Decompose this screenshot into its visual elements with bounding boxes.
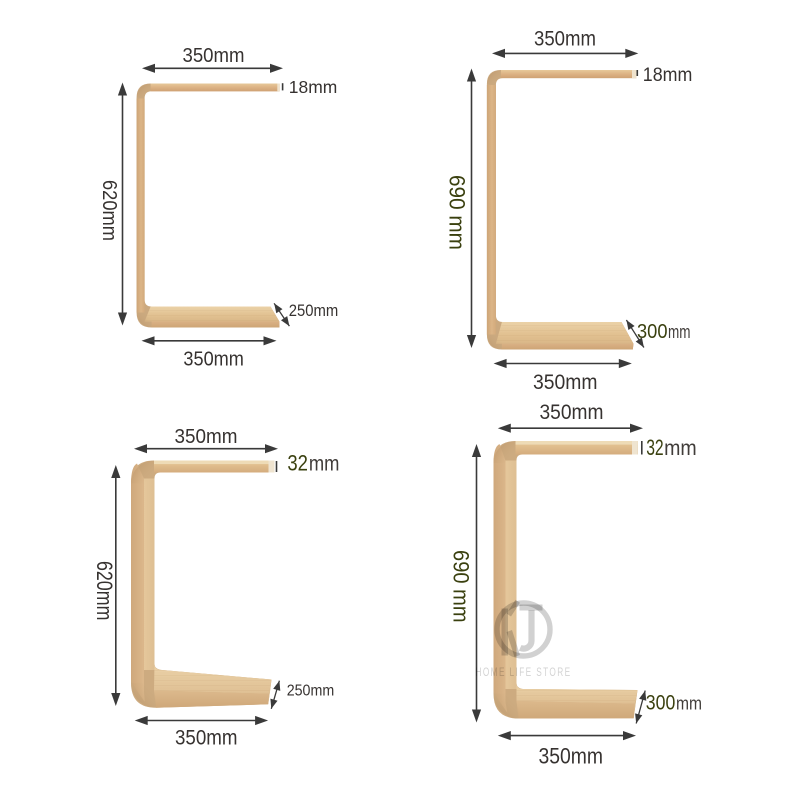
svg-text:350mm: 350mm	[533, 370, 598, 394]
svg-text:620mm: 620mm	[92, 561, 117, 621]
svg-text:350mm: 350mm	[183, 348, 244, 370]
svg-text:350mm: 350mm	[539, 744, 604, 769]
svg-text:350mm: 350mm	[540, 400, 604, 424]
svg-text:mm: mm	[668, 322, 691, 342]
svg-text:18mm: 18mm	[643, 64, 693, 86]
svg-text:HOME LIFE STORE: HOME LIFE STORE	[476, 665, 572, 679]
svg-text:18mm: 18mm	[289, 77, 338, 97]
svg-text:300: 300	[646, 691, 676, 714]
svg-text:mm: mm	[676, 693, 702, 713]
svg-text:350mm: 350mm	[175, 727, 238, 750]
svg-text:250mm: 250mm	[287, 683, 335, 700]
svg-text:mm: mm	[664, 437, 697, 460]
svg-text:690 mm: 690 mm	[449, 550, 474, 623]
svg-text:350mm: 350mm	[534, 26, 596, 50]
svg-text:300: 300	[637, 320, 668, 343]
svg-text:350mm: 350mm	[175, 426, 238, 448]
svg-text:32: 32	[646, 435, 664, 460]
svg-text:250mm: 250mm	[289, 302, 339, 320]
svg-text:620mm: 620mm	[98, 180, 120, 241]
svg-text:690 mm: 690 mm	[444, 175, 469, 250]
svg-text:350mm: 350mm	[183, 44, 245, 67]
svg-text:32: 32	[287, 450, 308, 475]
svg-text:mm: mm	[309, 452, 340, 475]
